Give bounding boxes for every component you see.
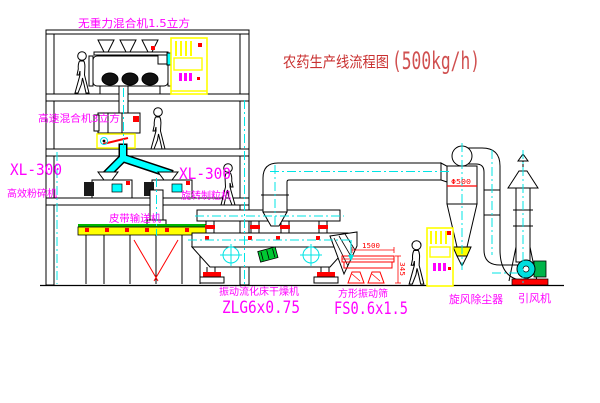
label-granulator-model: XL-300 [179,164,231,183]
dim-cyclone: Φ500 [451,178,471,186]
person-figure-2 [151,108,165,149]
dim-screen-length: 1500 [362,242,380,250]
control-cabinet-top [171,38,207,94]
person-figure-1 [75,52,89,93]
label-dryer-name: 振动流化床干燥机 [219,285,299,298]
label-high-speed-mixer: 高速混合机3立方 [38,112,120,125]
floor-slab-1 [46,94,249,101]
control-cabinet-right [427,228,453,286]
column-left [46,30,54,285]
floor-slab-2 [46,149,249,156]
gravity-free-mixer [89,40,172,94]
label-pulverizer-name: 高效粉碎机 [7,187,57,200]
granulator-left [84,172,132,198]
label-fan-name: 引风机 [518,291,551,305]
label-screen-model: FS0.6x1.5 [334,299,408,319]
person-figure-4 [409,241,424,284]
page-title: 农药生产线流程图 [283,53,389,71]
page-title-capacity: (500kg/h) [392,47,480,75]
cad-drawing-canvas: 无重力混合机1.5立方 高速混合机3立方 XL-300 高效粉碎机 XL-300… [0,0,600,403]
belt-conveyor [78,224,206,284]
label-granulator-name: 旋转制粒机 [181,189,231,202]
label-gravity-mixer: 无重力混合机1.5立方 [78,16,190,30]
label-dryer-model: ZLG6x0.75 [222,298,300,318]
flow-diagram: 无重力混合机1.5立方 高速混合机3立方 XL-300 高效粉碎机 XL-300… [0,0,600,403]
roof-beam [46,30,249,34]
dim-screen-height: 345 [398,262,406,276]
label-belt-conveyor: 皮带输送机 [109,212,161,225]
label-pulverizer-model: XL-300 [10,160,62,179]
label-cyclone-name: 旋风除尘器 [449,292,503,306]
